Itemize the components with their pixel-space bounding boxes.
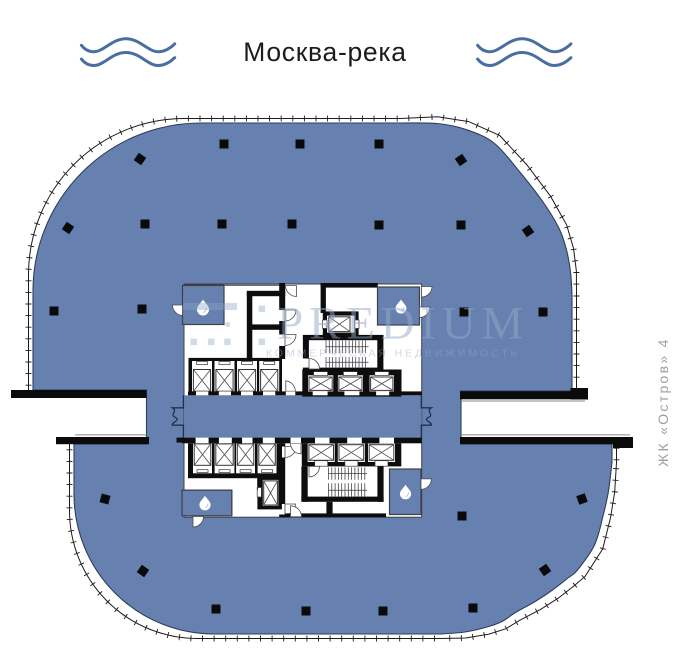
svg-text:КОММЕРЧЕСКАЯ НЕДВИЖИМОСТЬ: КОММЕРЧЕСКАЯ НЕДВИЖИМОСТЬ	[266, 348, 520, 360]
svg-text:Москва-река: Москва-река	[243, 37, 406, 67]
svg-text:ЖК «Остров» 4: ЖК «Остров» 4	[655, 337, 671, 466]
svg-text:PREDIUM: PREDIUM	[277, 298, 529, 350]
